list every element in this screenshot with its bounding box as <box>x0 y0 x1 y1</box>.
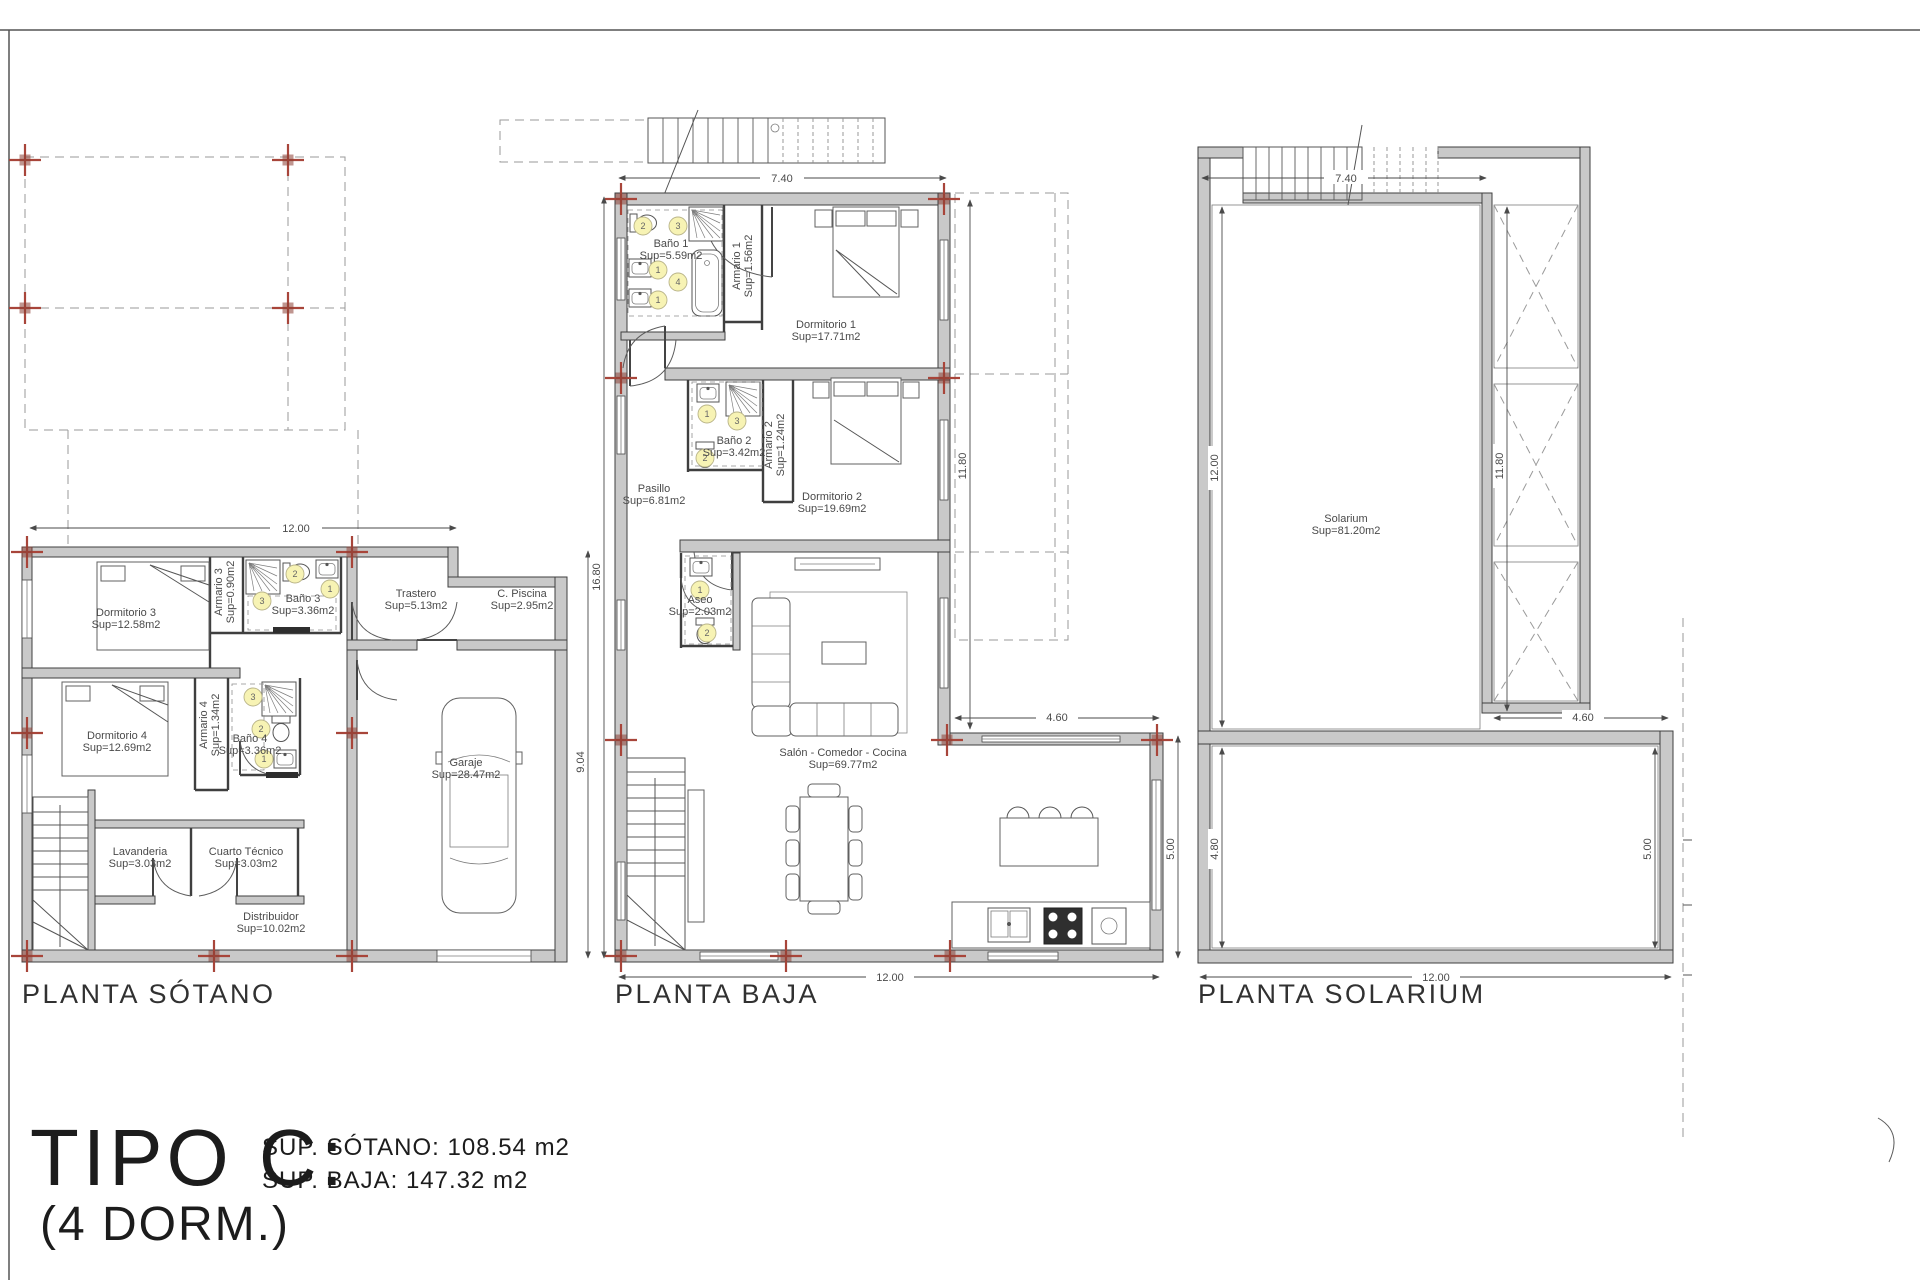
svg-text:Dormitorio 1: Dormitorio 1 <box>796 319 856 331</box>
svg-text:Armario 3: Armario 3 <box>213 568 225 616</box>
room-label-armario3: Armario 3Sup=0.90m2 <box>213 561 237 624</box>
svg-text:7.40: 7.40 <box>1335 173 1356 185</box>
cooktop <box>1044 908 1082 944</box>
svg-text:Sup=19.69m2: Sup=19.69m2 <box>798 503 867 515</box>
baja-terrace-dashed <box>955 193 1068 640</box>
sup-sotano: SUP. SÓTANO: 108.54 m2 <box>262 1134 570 1161</box>
living-room <box>752 558 907 736</box>
room-label-armario2: Armario 2Sup=1.24m2 <box>763 414 787 477</box>
svg-text:C. Piscina: C. Piscina <box>497 588 547 600</box>
svg-text:Sup=3.03m2: Sup=3.03m2 <box>109 858 172 870</box>
svg-text:Baño 1: Baño 1 <box>654 238 689 250</box>
svg-text:Baño 4: Baño 4 <box>233 733 268 745</box>
svg-text:Sup=0.90m2: Sup=0.90m2 <box>225 561 237 624</box>
sofa <box>752 598 898 736</box>
stools <box>1007 807 1093 818</box>
room-label-aseo: AseoSup=2.03m2 <box>669 594 732 618</box>
kitchen-sink <box>988 908 1030 942</box>
svg-text:Pasillo: Pasillo <box>638 483 670 495</box>
room-label-distribuidor: DistribuidorSup=10.02m2 <box>237 911 306 935</box>
kitchen-island <box>1000 818 1098 866</box>
dorm-label: (4 DORM.) <box>40 1198 290 1251</box>
svg-text:Dormitorio 3: Dormitorio 3 <box>96 607 156 619</box>
room-label-dormitorio2: Dormitorio 2Sup=19.69m2 <box>798 491 867 515</box>
svg-text:Cuarto Técnico: Cuarto Técnico <box>209 846 283 858</box>
svg-text:Sup=17.71m2: Sup=17.71m2 <box>792 331 861 343</box>
svg-text:4.80: 4.80 <box>1209 838 1221 859</box>
svg-text:2: 2 <box>704 628 709 638</box>
svg-text:1: 1 <box>655 265 660 275</box>
svg-text:Sup=1.24m2: Sup=1.24m2 <box>775 414 787 477</box>
svg-text:16.80: 16.80 <box>591 563 603 591</box>
svg-text:9.04: 9.04 <box>575 751 587 772</box>
svg-text:12.00: 12.00 <box>1209 454 1221 482</box>
car <box>436 698 522 913</box>
svg-text:3: 3 <box>250 692 255 702</box>
bed-dormitorio3 <box>97 562 209 650</box>
svg-text:Dormitorio 2: Dormitorio 2 <box>802 491 862 503</box>
svg-text:Sup=2.95m2: Sup=2.95m2 <box>491 600 554 612</box>
svg-text:7.40: 7.40 <box>771 173 792 185</box>
room-label-dormitorio3: Dormitorio 3Sup=12.58m2 <box>92 607 161 631</box>
svg-text:11.80: 11.80 <box>1494 453 1506 480</box>
solarium-dimensions: 7.40 12.00 11.80 4.60 4.80 5.00 12.00 <box>1200 170 1671 984</box>
svg-text:Salón - Comedor - Cocina: Salón - Comedor - Cocina <box>779 747 907 759</box>
svg-text:4: 4 <box>675 277 680 287</box>
title-block: TIPO C: (4 DORM.) SUP. SÓTANO: 108.54 m2… <box>30 1113 570 1251</box>
sotano-crosses <box>9 144 368 972</box>
svg-text:1: 1 <box>655 295 660 305</box>
svg-text:Lavanderia: Lavanderia <box>113 846 168 858</box>
svg-text:4.60: 4.60 <box>1572 712 1593 724</box>
room-label-cuarto-tecnico: Cuarto TécnicoSup=3.03m2 <box>209 846 283 870</box>
dining-table <box>786 784 862 914</box>
room-label-bano2: Baño 2Sup=3.42m2 <box>703 435 766 459</box>
room-label-lavanderia: LavanderiaSup=3.03m2 <box>109 846 172 870</box>
baja-exterior-stair <box>500 110 885 205</box>
plan-baja: 7.40 <box>500 110 1178 1009</box>
dim-sotano-width: 12.00 <box>30 520 456 535</box>
baja-stairs <box>627 758 704 950</box>
svg-text:Sup=3.36m2: Sup=3.36m2 <box>272 605 335 617</box>
svg-text:Sup=5.13m2: Sup=5.13m2 <box>385 600 448 612</box>
svg-text:Sup=3.03m2: Sup=3.03m2 <box>215 858 278 870</box>
svg-text:Sup=28.47m2: Sup=28.47m2 <box>432 769 501 781</box>
svg-text:Solarium: Solarium <box>1324 513 1367 525</box>
plan-sotano: 12.00 <box>9 144 588 1009</box>
svg-text:Sup=69.77m2: Sup=69.77m2 <box>809 759 878 771</box>
svg-text:11.80: 11.80 <box>957 453 969 480</box>
svg-text:Sup=5.59m2: Sup=5.59m2 <box>640 250 703 262</box>
room-label-dormitorio4: Dormitorio 4Sup=12.69m2 <box>83 730 152 754</box>
room-label-trastero: TrasteroSup=5.13m2 <box>385 588 448 612</box>
svg-text:Sup=12.58m2: Sup=12.58m2 <box>92 619 161 631</box>
stair-rail <box>688 790 704 922</box>
svg-text:Distribuidor: Distribuidor <box>243 911 299 923</box>
svg-text:3: 3 <box>259 596 264 606</box>
svg-text:Sup=12.69m2: Sup=12.69m2 <box>83 742 152 754</box>
svg-text:Baño 3: Baño 3 <box>286 593 321 605</box>
plan-solarium: Solarium Sup=81.20m2 7.40 12.00 11.80 4.… <box>1198 125 1673 1009</box>
room-label-salon: Salón - Comedor - CocinaSup=69.77m2 <box>779 747 907 771</box>
svg-text:Sup=2.03m2: Sup=2.03m2 <box>669 606 732 618</box>
svg-text:4.60: 4.60 <box>1046 712 1067 724</box>
svg-text:3: 3 <box>734 416 739 426</box>
svg-text:3: 3 <box>675 221 680 231</box>
plan-label-solarium: PLANTA SOLARIUM <box>1198 979 1486 1009</box>
svg-text:1: 1 <box>704 409 709 419</box>
dim-baja-top: 7.40 <box>619 170 946 185</box>
svg-text:Armario 1: Armario 1 <box>731 242 743 290</box>
svg-text:Garaje: Garaje <box>449 757 482 769</box>
svg-text:Sup=3.36m2: Sup=3.36m2 <box>219 745 282 757</box>
svg-text:Sup=10.02m2: Sup=10.02m2 <box>237 923 306 935</box>
svg-text:Baño 2: Baño 2 <box>717 435 752 447</box>
plan-label-baja: PLANTA BAJA <box>615 979 819 1009</box>
svg-text:Dormitorio 4: Dormitorio 4 <box>87 730 147 742</box>
bed-dormitorio1 <box>815 207 918 297</box>
dim-sotano-height: 9.04 <box>574 551 588 958</box>
svg-text:Sup=3.42m2: Sup=3.42m2 <box>703 447 766 459</box>
room-label-pasillo: PasilloSup=6.81m2 <box>623 483 686 507</box>
svg-text:Aseo: Aseo <box>687 594 712 606</box>
svg-text:1: 1 <box>327 584 332 594</box>
architectural-sheet: 12.00 <box>0 0 1920 1280</box>
svg-text:12.00: 12.00 <box>876 972 904 984</box>
svg-text:5.00: 5.00 <box>1642 838 1654 859</box>
svg-text:Sup=81.20m2: Sup=81.20m2 <box>1312 525 1381 537</box>
baja-markers: 2 3 1 1 4 1 3 2 1 2 <box>634 217 746 642</box>
room-label-solarium: Solarium Sup=81.20m2 <box>1312 513 1381 537</box>
svg-text:2: 2 <box>640 221 645 231</box>
coffee-table <box>822 642 866 664</box>
svg-text:Armario 2: Armario 2 <box>763 421 775 469</box>
svg-text:Sup=6.81m2: Sup=6.81m2 <box>623 495 686 507</box>
svg-text:Trastero: Trastero <box>396 588 437 600</box>
kitchen <box>952 807 1150 948</box>
svg-text:Armario 4: Armario 4 <box>198 701 210 749</box>
projection-dashed <box>25 157 358 545</box>
dim-text: 12.00 <box>282 523 310 535</box>
svg-text:2: 2 <box>292 569 297 579</box>
solarium-walls <box>1198 147 1673 963</box>
boundary-curve <box>1878 1118 1894 1162</box>
sup-baja: SUP. BAJA: 147.32 m2 <box>262 1167 528 1194</box>
room-label-bano1: Baño 1Sup=5.59m2 <box>640 238 703 262</box>
oven <box>1092 908 1126 944</box>
sotano-stairs <box>33 797 88 950</box>
room-label-dormitorio1: Dormitorio 1Sup=17.71m2 <box>792 319 861 343</box>
svg-text:5.00: 5.00 <box>1165 838 1177 859</box>
plan-label-sotano: PLANTA SÓTANO <box>22 978 276 1009</box>
bed-dormitorio4 <box>62 682 168 776</box>
boundary-ticks <box>1683 840 1692 975</box>
room-label-armario1: Armario 1Sup=1.56m2 <box>731 235 755 298</box>
room-label-c-piscina: C. PiscinaSup=2.95m2 <box>491 588 554 612</box>
bed-dormitorio2 <box>813 378 919 464</box>
svg-text:Sup=1.56m2: Sup=1.56m2 <box>743 235 755 298</box>
